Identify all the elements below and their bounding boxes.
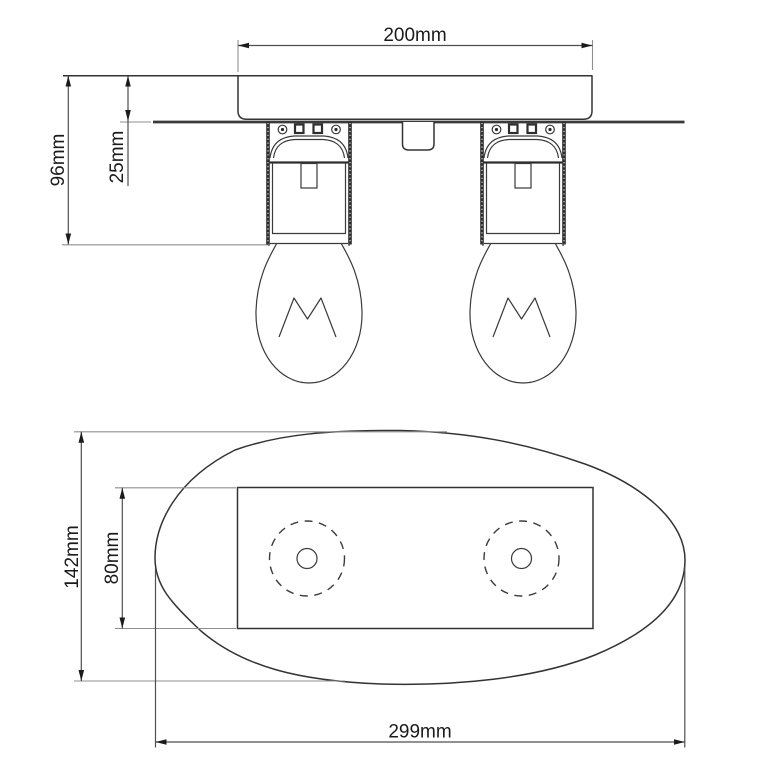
socket-bulb-left	[256, 122, 362, 383]
dimension-299mm: 299mm	[156, 567, 685, 748]
plan-plate-height-dim-label: 80mm	[102, 532, 123, 585]
fixture-body-outline	[155, 430, 685, 684]
plan-height-dim-label: 142mm	[62, 525, 83, 588]
dimension-96mm: 96mm	[48, 76, 268, 245]
light-fixture-technical-drawing: 200mm 96mm 25mm	[0, 0, 772, 771]
front-height-dim-label: 96mm	[48, 134, 69, 187]
backplate-rect	[238, 488, 594, 629]
socket-bulb-right	[470, 122, 576, 383]
fixing-hole	[297, 549, 317, 569]
dimension-25mm: 25mm	[107, 76, 128, 186]
fixing-hole	[512, 549, 532, 569]
front-width-dim-label: 200mm	[383, 25, 446, 46]
plan-view: 142mm 80mm 299mm	[62, 430, 685, 747]
junction-box	[403, 122, 435, 150]
canopy-height-dim-label: 25mm	[107, 131, 128, 184]
plan-width-dim-label: 299mm	[388, 722, 451, 743]
bulb-position-right	[484, 521, 559, 596]
dimension-200mm: 200mm	[238, 25, 593, 72]
bulb-position-left	[270, 521, 345, 596]
front-elevation-view: 200mm 96mm 25mm	[48, 25, 685, 383]
canopy-plate	[63, 76, 593, 120]
